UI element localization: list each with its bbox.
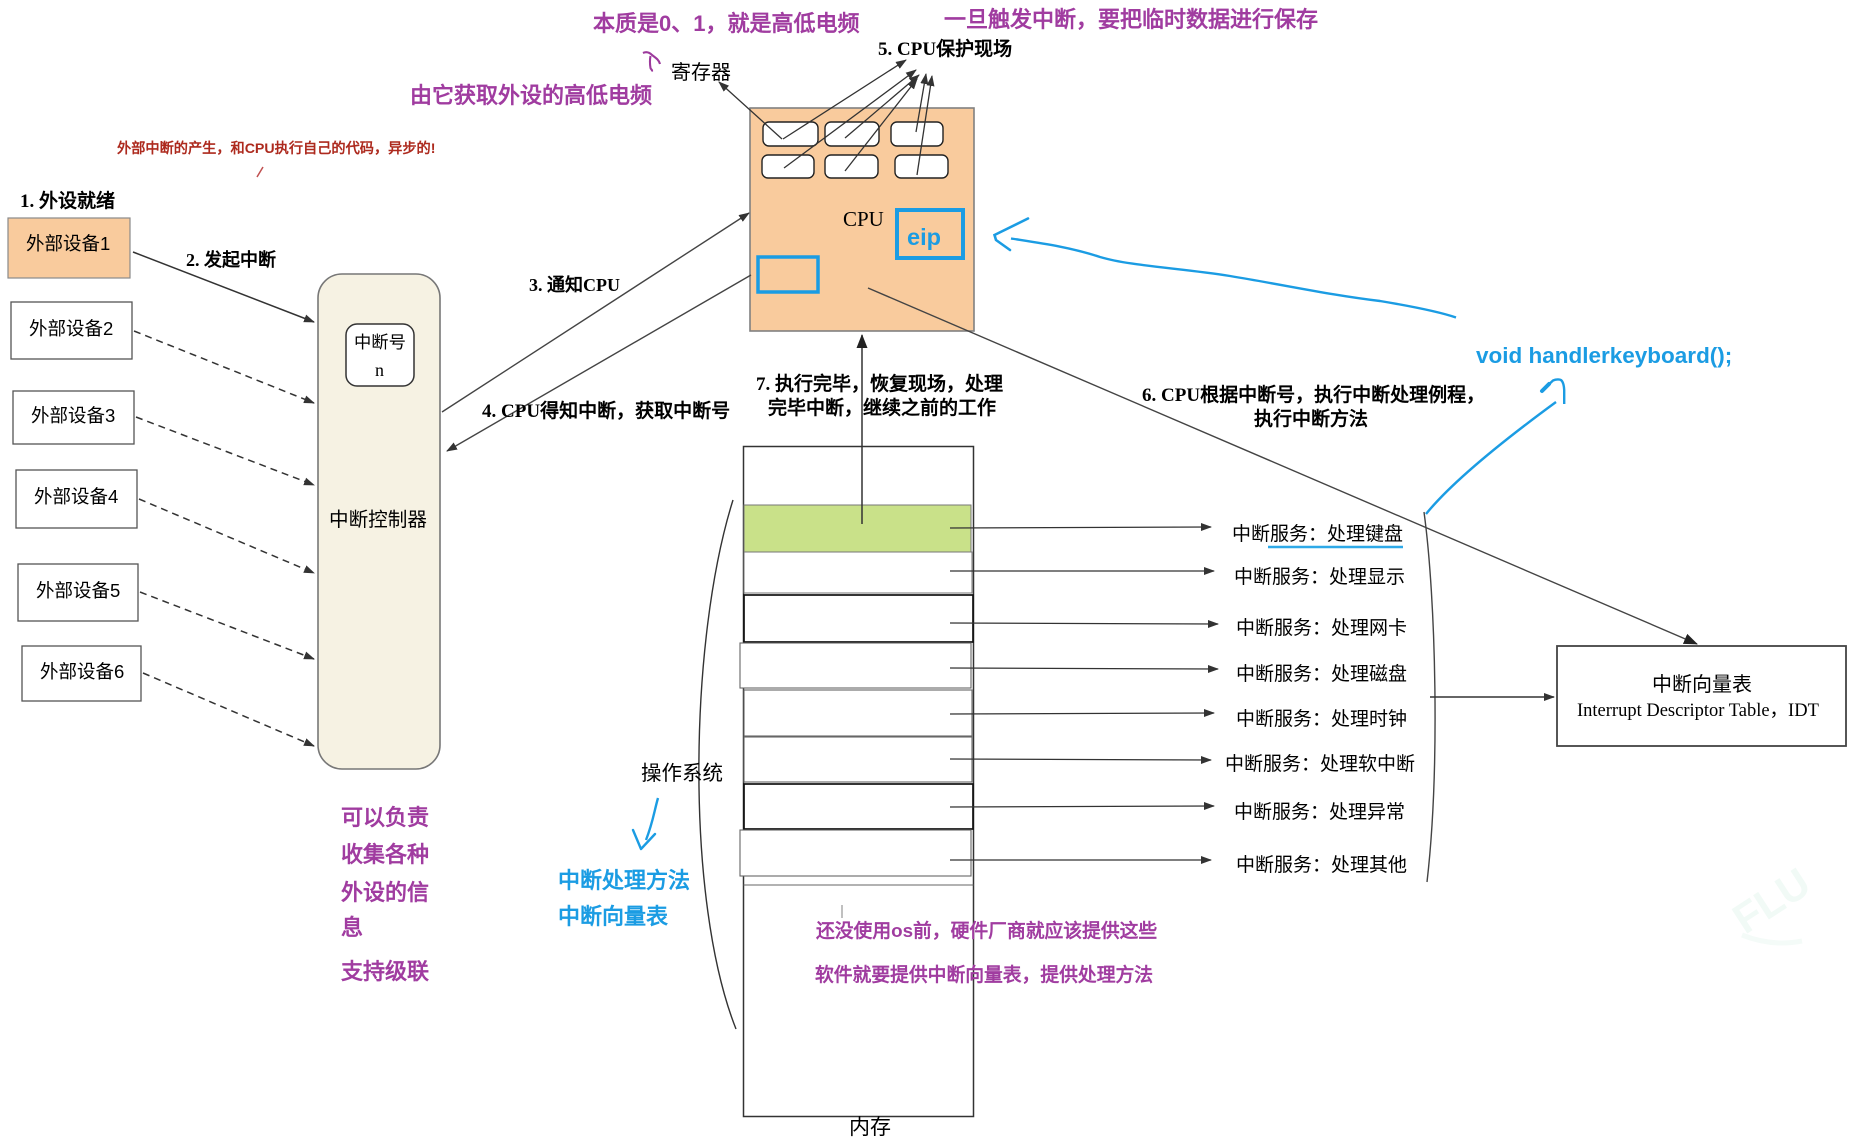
- svg-text:本质是0、1，就是高低电频: 本质是0、1，就是高低电频: [593, 11, 859, 36]
- svg-text:5. CPU保护现场: 5. CPU保护现场: [878, 37, 1012, 60]
- svg-text:外部设备5: 外部设备5: [36, 580, 120, 601]
- svg-text:2. 发起中断: 2. 发起中断: [186, 249, 276, 270]
- svg-text:n: n: [375, 360, 384, 380]
- svg-text:中断向量表: 中断向量表: [1652, 673, 1752, 696]
- svg-text:内存: 内存: [849, 1116, 891, 1137]
- svg-text:7. 执行完毕，恢复现场，处理: 7. 执行完毕，恢复现场，处理: [756, 372, 1003, 395]
- svg-text:中断服务：处理异常: 中断服务：处理异常: [1234, 801, 1405, 823]
- svg-text:息: 息: [341, 915, 363, 940]
- svg-text:寄存器: 寄存器: [671, 61, 731, 84]
- svg-text:中断服务：处理显示: 中断服务：处理显示: [1234, 566, 1405, 588]
- svg-text:eip: eip: [907, 224, 941, 250]
- svg-text:外部设备6: 外部设备6: [40, 661, 124, 682]
- svg-text:外部中断的产生，和CPU执行自己的代码，异步的!: 外部中断的产生，和CPU执行自己的代码，异步的!: [117, 140, 435, 157]
- svg-text:支持级联: 支持级联: [341, 959, 429, 984]
- svg-text:外部设备2: 外部设备2: [29, 318, 113, 339]
- svg-text:中断服务：处理键盘: 中断服务：处理键盘: [1232, 523, 1403, 545]
- svg-text:Interrupt Descriptor Table，IDT: Interrupt Descriptor Table，IDT: [1577, 701, 1819, 721]
- svg-text:收集各种: 收集各种: [341, 842, 429, 867]
- svg-text:中断号: 中断号: [354, 332, 406, 352]
- svg-text:中断服务：处理软中断: 中断服务：处理软中断: [1225, 753, 1415, 775]
- svg-text:4. CPU得知中断，获取中断号: 4. CPU得知中断，获取中断号: [482, 399, 730, 422]
- svg-text:中断控制器: 中断控制器: [329, 509, 427, 531]
- svg-text:CPU: CPU: [843, 207, 884, 231]
- svg-text:中断服务：处理网卡: 中断服务：处理网卡: [1236, 617, 1407, 639]
- svg-text:可以负责: 可以负责: [341, 805, 429, 830]
- svg-text:1. 外设就绪: 1. 外设就绪: [20, 189, 115, 212]
- svg-text:中断向量表: 中断向量表: [558, 904, 669, 929]
- svg-text:外部设备3: 外部设备3: [31, 405, 115, 426]
- svg-text:6. CPU根据中断号，执行中断处理例程，: 6. CPU根据中断号，执行中断处理例程，: [1142, 383, 1485, 406]
- svg-text:FLU: FLU: [1724, 859, 1818, 943]
- svg-text:执行中断方法: 执行中断方法: [1254, 407, 1368, 430]
- svg-text:完毕中断，继续之前的工作: 完毕中断，继续之前的工作: [768, 396, 996, 419]
- svg-text:外部设备4: 外部设备4: [34, 486, 118, 507]
- svg-text:3. 通知CPU: 3. 通知CPU: [529, 274, 620, 295]
- svg-text:软件就要提供中断向量表，提供处理方法: 软件就要提供中断向量表，提供处理方法: [815, 963, 1153, 985]
- svg-text:中断服务：处理时钟: 中断服务：处理时钟: [1236, 708, 1407, 730]
- svg-text:还没使用os前，硬件厂商就应该提供这些: 还没使用os前，硬件厂商就应该提供这些: [815, 919, 1157, 941]
- svg-text:中断处理方法: 中断处理方法: [558, 868, 690, 893]
- svg-text:void handlerkeyboard();: void handlerkeyboard();: [1476, 343, 1732, 368]
- svg-text:由它获取外设的高低电频: 由它获取外设的高低电频: [410, 83, 652, 108]
- svg-text:一旦触发中断，要把临时数据进行保存: 一旦触发中断，要把临时数据进行保存: [944, 7, 1318, 32]
- svg-text:中断服务：处理磁盘: 中断服务：处理磁盘: [1236, 663, 1407, 685]
- svg-text:中断服务：处理其他: 中断服务：处理其他: [1236, 854, 1407, 876]
- svg-text:外设的信: 外设的信: [341, 880, 429, 905]
- svg-text:外部设备1: 外部设备1: [26, 233, 110, 254]
- svg-text:操作系统: 操作系统: [641, 762, 723, 785]
